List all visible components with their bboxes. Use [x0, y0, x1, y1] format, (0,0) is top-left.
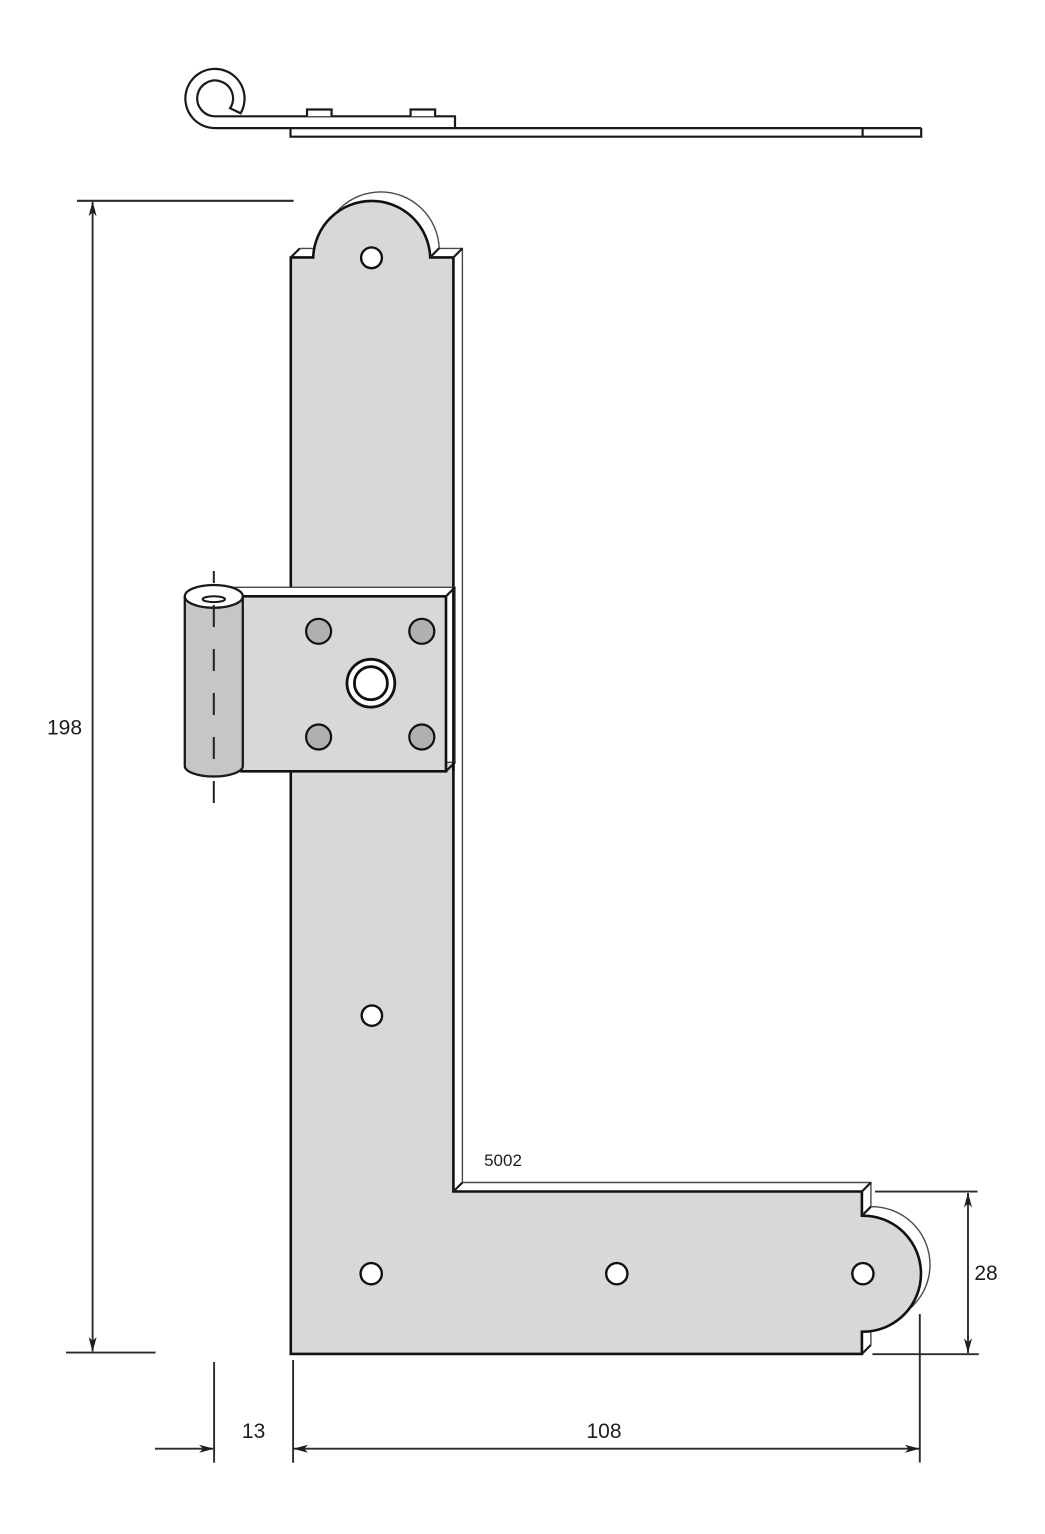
- svg-text:13: 13: [242, 1420, 265, 1443]
- svg-text:28: 28: [974, 1262, 997, 1285]
- svg-text:108: 108: [586, 1420, 621, 1443]
- svg-text:5002: 5002: [484, 1151, 522, 1170]
- svg-text:198: 198: [47, 717, 82, 740]
